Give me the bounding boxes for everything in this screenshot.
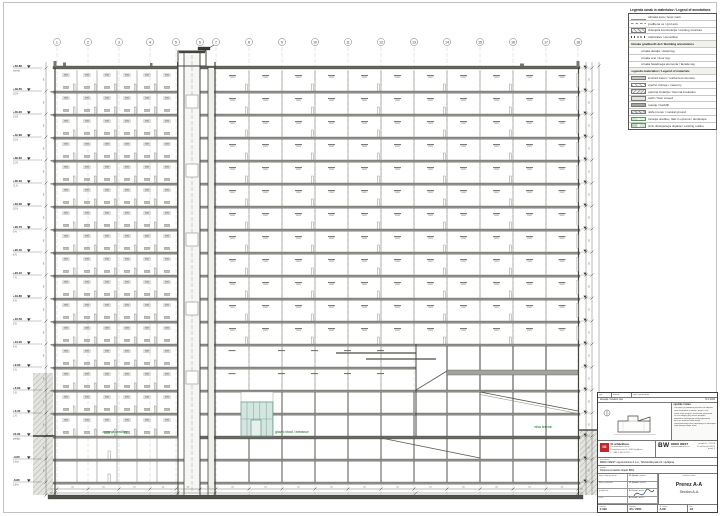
signature-name: M. Novak, u.d.i.a.	[628, 474, 658, 481]
structural-walls	[54, 61, 580, 495]
svg-text:pritličje: pritličje	[13, 437, 21, 440]
legend-row: estrih / floor screed	[629, 95, 716, 102]
svg-text:5: 5	[175, 40, 177, 44]
legend-swatch-fill-ins	[631, 89, 646, 93]
copy-number: izvod: 1	[697, 448, 715, 451]
svg-text:16: 16	[511, 40, 515, 44]
object-row: objekt: Poslovno-hotelski objekt BW1	[598, 466, 717, 474]
svg-text:2: 2	[87, 40, 89, 44]
svg-text:11.N: 11.N	[13, 184, 18, 187]
legend-swatch-fill-conc	[631, 76, 646, 80]
svg-text:+33.00: +33.00	[13, 202, 22, 206]
legend-row-label: oznaka fasadnega elementa / facade tag	[641, 62, 695, 66]
svg-text:15.N: 15.N	[13, 92, 18, 95]
svg-text:+29.70: +29.70	[13, 225, 22, 229]
svg-text:14.N: 14.N	[13, 115, 18, 118]
legend: Legenda oznak in materialov / Legend of …	[628, 8, 717, 130]
legend-row-label: višinska kota / level mark	[648, 15, 681, 19]
legend-row-label: oznaka vrat / door tag	[641, 56, 670, 60]
list-value: 1/1	[690, 507, 694, 511]
svg-text:-6.80: -6.80	[13, 478, 20, 482]
signature-row: odg. vodja projekta:M. Novak, u.d.i.a.	[598, 474, 658, 482]
svg-text:1.klet: 1.klet	[13, 460, 19, 463]
notes-title: opombe / notes:	[674, 404, 716, 407]
svg-text:15: 15	[478, 40, 482, 44]
legend-row-label: nasutje / backfill	[648, 103, 669, 107]
entrance-glazing	[241, 392, 273, 436]
signature-role: projektant:	[598, 489, 628, 496]
svg-text:6.N: 6.N	[13, 299, 17, 302]
legend-row: Oznake gradbenih del / Building annotati…	[629, 40, 716, 47]
legend-title: Legenda oznak in materialov / Legend of …	[630, 8, 717, 12]
svg-text:6: 6	[199, 40, 201, 44]
scale-row: merilo: 1:100 datum: 05 / 2021 št. risbe…	[598, 504, 717, 512]
svg-text:10: 10	[313, 40, 317, 44]
svg-text:+46.20: +46.20	[13, 110, 22, 114]
client-subname: nepremičnine d.o.o.	[671, 446, 696, 449]
svg-text:8: 8	[248, 40, 250, 44]
legend-swatch-fill-soil	[631, 110, 646, 114]
legend-row-label: obstoječa konstrukcija / existing struct…	[648, 28, 703, 32]
legend-row-label: estrih / floor screed	[648, 96, 674, 100]
svg-text:+26.40: +26.40	[13, 248, 22, 252]
svg-text:10.N: 10.N	[13, 207, 18, 210]
svg-text:+39.60: +39.60	[13, 156, 22, 160]
elevator-core	[178, 45, 214, 495]
svg-text:13: 13	[412, 40, 416, 44]
legend-row: obris obstoječega objekta / existing out…	[629, 122, 716, 129]
drawing-title-label: vsebina risbe:	[659, 475, 717, 478]
svg-text:9: 9	[281, 40, 283, 44]
svg-text:streha: streha	[13, 69, 20, 72]
svg-text:1.N: 1.N	[13, 414, 17, 417]
legend-swatch-fill-screed	[631, 96, 646, 100]
svg-text:12: 12	[379, 40, 383, 44]
svg-text:+19.80: +19.80	[13, 294, 22, 298]
svg-text:zunanja ureditev: zunanja ureditev	[102, 430, 127, 434]
legend-row: zunanja ureditev, tlaki in oprema / land…	[629, 115, 716, 122]
title-block: spr. datum opis spremembe situacija / lo…	[597, 392, 718, 513]
grid-lines: 123456789101112131415161718	[53, 38, 581, 498]
signature-role: risal:	[598, 497, 628, 504]
legend-swatch-sym-exist	[631, 28, 646, 32]
revision-col: datum	[612, 393, 632, 397]
legend-swatch-sym-axis	[631, 22, 646, 26]
drawing-title-cell: vsebina risbe: Prerez A-A Section A-A	[658, 474, 717, 504]
svg-text:5.N: 5.N	[13, 322, 17, 325]
svg-text:4: 4	[149, 40, 151, 44]
legend-row: nasutje / backfill	[629, 101, 716, 108]
svg-text:12.N: 12.N	[13, 161, 18, 164]
investor-value: BRDO WEST nepremičnine d.o.o., Tehnološk…	[600, 461, 674, 464]
svg-text:13.N: 13.N	[13, 138, 18, 141]
svg-text:glavni vhod / entrance: glavni vhod / entrance	[275, 430, 309, 434]
legend-swatch-green-b	[631, 123, 646, 127]
legend-row-label: opečno zidovje / masonry	[648, 83, 682, 87]
list-cell: list: 1/1	[688, 505, 717, 512]
svg-text:+3.30: +3.30	[13, 409, 21, 413]
legend-indent	[631, 62, 639, 66]
client-logo: BW	[658, 443, 669, 455]
notes-lines: Vse mere je potrebno preveriti na objekt…	[674, 407, 716, 428]
svg-text:9.N: 9.N	[13, 230, 17, 233]
legend-row: raščen teren / natural ground	[629, 108, 716, 115]
sheet-number-value: A.08	[660, 507, 666, 511]
architect-phone: t: +386 1 300 10 10	[611, 452, 643, 455]
date-value: 05 / 2021	[630, 507, 642, 511]
legend-swatch-fill-brick	[631, 83, 646, 87]
legend-row: armirani beton / reinforced concrete	[629, 74, 716, 81]
svg-text:2.klet: 2.klet	[13, 483, 19, 486]
signature-role: odg. vodja projekta:	[598, 474, 628, 481]
legend-swatch-green-a	[631, 117, 646, 121]
siteplan-sketch-drawing	[598, 403, 672, 441]
architect-block: IG IG arhitektura IG arhitektura d.o.o. …	[598, 441, 656, 457]
scale-value: 1:100	[600, 507, 607, 511]
revision-col: spr.	[598, 393, 612, 397]
legend-swatch-sym-demo	[631, 35, 646, 39]
svg-text:7: 7	[215, 40, 217, 44]
svg-text:8.N: 8.N	[13, 253, 17, 256]
legend-row-label: odstranitev / demolition	[648, 35, 679, 39]
legend-row-label: raščen teren / natural ground	[648, 110, 687, 114]
legend-swatch-sym-level	[631, 15, 646, 19]
svg-text:±0.00: ±0.00	[13, 432, 21, 436]
svg-text:2.N: 2.N	[13, 391, 17, 394]
legend-indent	[631, 55, 639, 59]
svg-text:-3.60: -3.60	[13, 455, 20, 459]
scale-cell: merilo: 1:100	[598, 505, 628, 512]
svg-text:3.N: 3.N	[13, 368, 17, 371]
drawing-subtitle: Section A-A	[659, 490, 717, 494]
site-level-labels: zunanja ureditevglavni vhod / entranceni…	[102, 425, 551, 434]
svg-text:+36.30: +36.30	[13, 179, 22, 183]
client-block: BW BRDO WEST nepremičnine d.o.o. projekt…	[656, 441, 717, 457]
svg-text:4.N: 4.N	[13, 345, 17, 348]
object-value: Poslovno-hotelski objekt BW1	[600, 469, 634, 472]
legend-row-label: Legenda materialov / Legend of materials	[631, 69, 690, 73]
drawing-title: Prerez A-A	[659, 482, 717, 488]
svg-text:17: 17	[544, 40, 548, 44]
legend-row: oznaka fasadnega elementa / facade tag	[629, 61, 716, 68]
svg-text:3: 3	[118, 40, 120, 44]
signature	[632, 486, 656, 500]
drawing-sheet: { "legend": { "title": "Legenda oznak in…	[0, 0, 720, 516]
svg-text:18: 18	[576, 40, 580, 44]
svg-text:nivo terena: nivo terena	[534, 425, 551, 429]
legend-row: odstranitev / demolition	[629, 33, 716, 40]
svg-text:+23.10: +23.10	[13, 271, 22, 275]
siteplan-scale: M 1:2000	[705, 399, 715, 402]
architect-logo: IG	[600, 443, 609, 452]
legend-row: oznaka vrat / door tag	[629, 54, 716, 61]
legend-row: obstoječa konstrukcija / existing struct…	[629, 27, 716, 34]
notes-block: opombe / notes: Vse mere je potrebno pre…	[672, 403, 717, 441]
svg-text:+49.50: +49.50	[13, 87, 22, 91]
legend-row-label: gradbena os / grid axis	[648, 22, 678, 26]
svg-text:+42.90: +42.90	[13, 133, 22, 137]
legend-rows: višinska kota / level markgradbena os / …	[628, 13, 717, 130]
sheet-number-cell: št. risbe: A.08	[658, 505, 688, 512]
investor-row: investitor: BRDO WEST nepremičnine d.o.o…	[598, 458, 717, 466]
svg-text:11: 11	[346, 40, 350, 44]
logos-row: IG IG arhitektura IG arhitektura d.o.o. …	[598, 441, 717, 458]
svg-text:+52.80: +52.80	[13, 64, 22, 68]
signature-role: odg. projektant:	[598, 482, 628, 489]
svg-text:+13.20: +13.20	[13, 340, 22, 344]
legend-row: oznaka detajla / detail tag	[629, 47, 716, 54]
legend-row-label: Oznake gradbenih del / Building annotati…	[631, 42, 695, 46]
svg-text:14: 14	[445, 40, 449, 44]
legend-row: opečno zidovje / masonry	[629, 81, 716, 88]
legend-row: Legenda materialov / Legend of materials	[629, 67, 716, 74]
legend-row-label: obris obstoječega objekta / existing out…	[648, 124, 704, 128]
svg-text:+16.50: +16.50	[13, 317, 22, 321]
revision-col: opis spremembe	[632, 393, 717, 397]
project-numbers: projekt št.: 21-014 št. načrta: A-214/21…	[697, 443, 715, 455]
legend-row: gradbena os / grid axis	[629, 20, 716, 27]
signature-table: odg. vodja projekta:M. Novak, u.d.i.a.od…	[598, 474, 717, 504]
siteplan-label: situacija / location plan	[600, 399, 623, 402]
legend-row-label: armirani beton / reinforced concrete	[648, 76, 695, 80]
svg-text:+9.90: +9.90	[13, 363, 21, 367]
legend-row-label: zunanja ureditev, tlaki in oprema / land…	[648, 117, 707, 121]
legend-row-label: oznaka detajla / detail tag	[641, 49, 675, 53]
svg-text:+6.60: +6.60	[13, 386, 21, 390]
legend-swatch-fill-fill	[631, 103, 646, 107]
siteplan-sketch	[598, 403, 672, 441]
note-line: Velja zadnja izdaja risbe.	[674, 425, 716, 428]
date-cell: datum: 05 / 2021	[628, 505, 658, 512]
legend-row: toplotna izolacija / thermal insulation	[629, 88, 716, 95]
legend-indent	[631, 49, 639, 53]
svg-text:1: 1	[56, 40, 58, 44]
svg-text:7.N: 7.N	[13, 276, 17, 279]
legend-row-label: toplotna izolacija / thermal insulation	[648, 90, 696, 94]
